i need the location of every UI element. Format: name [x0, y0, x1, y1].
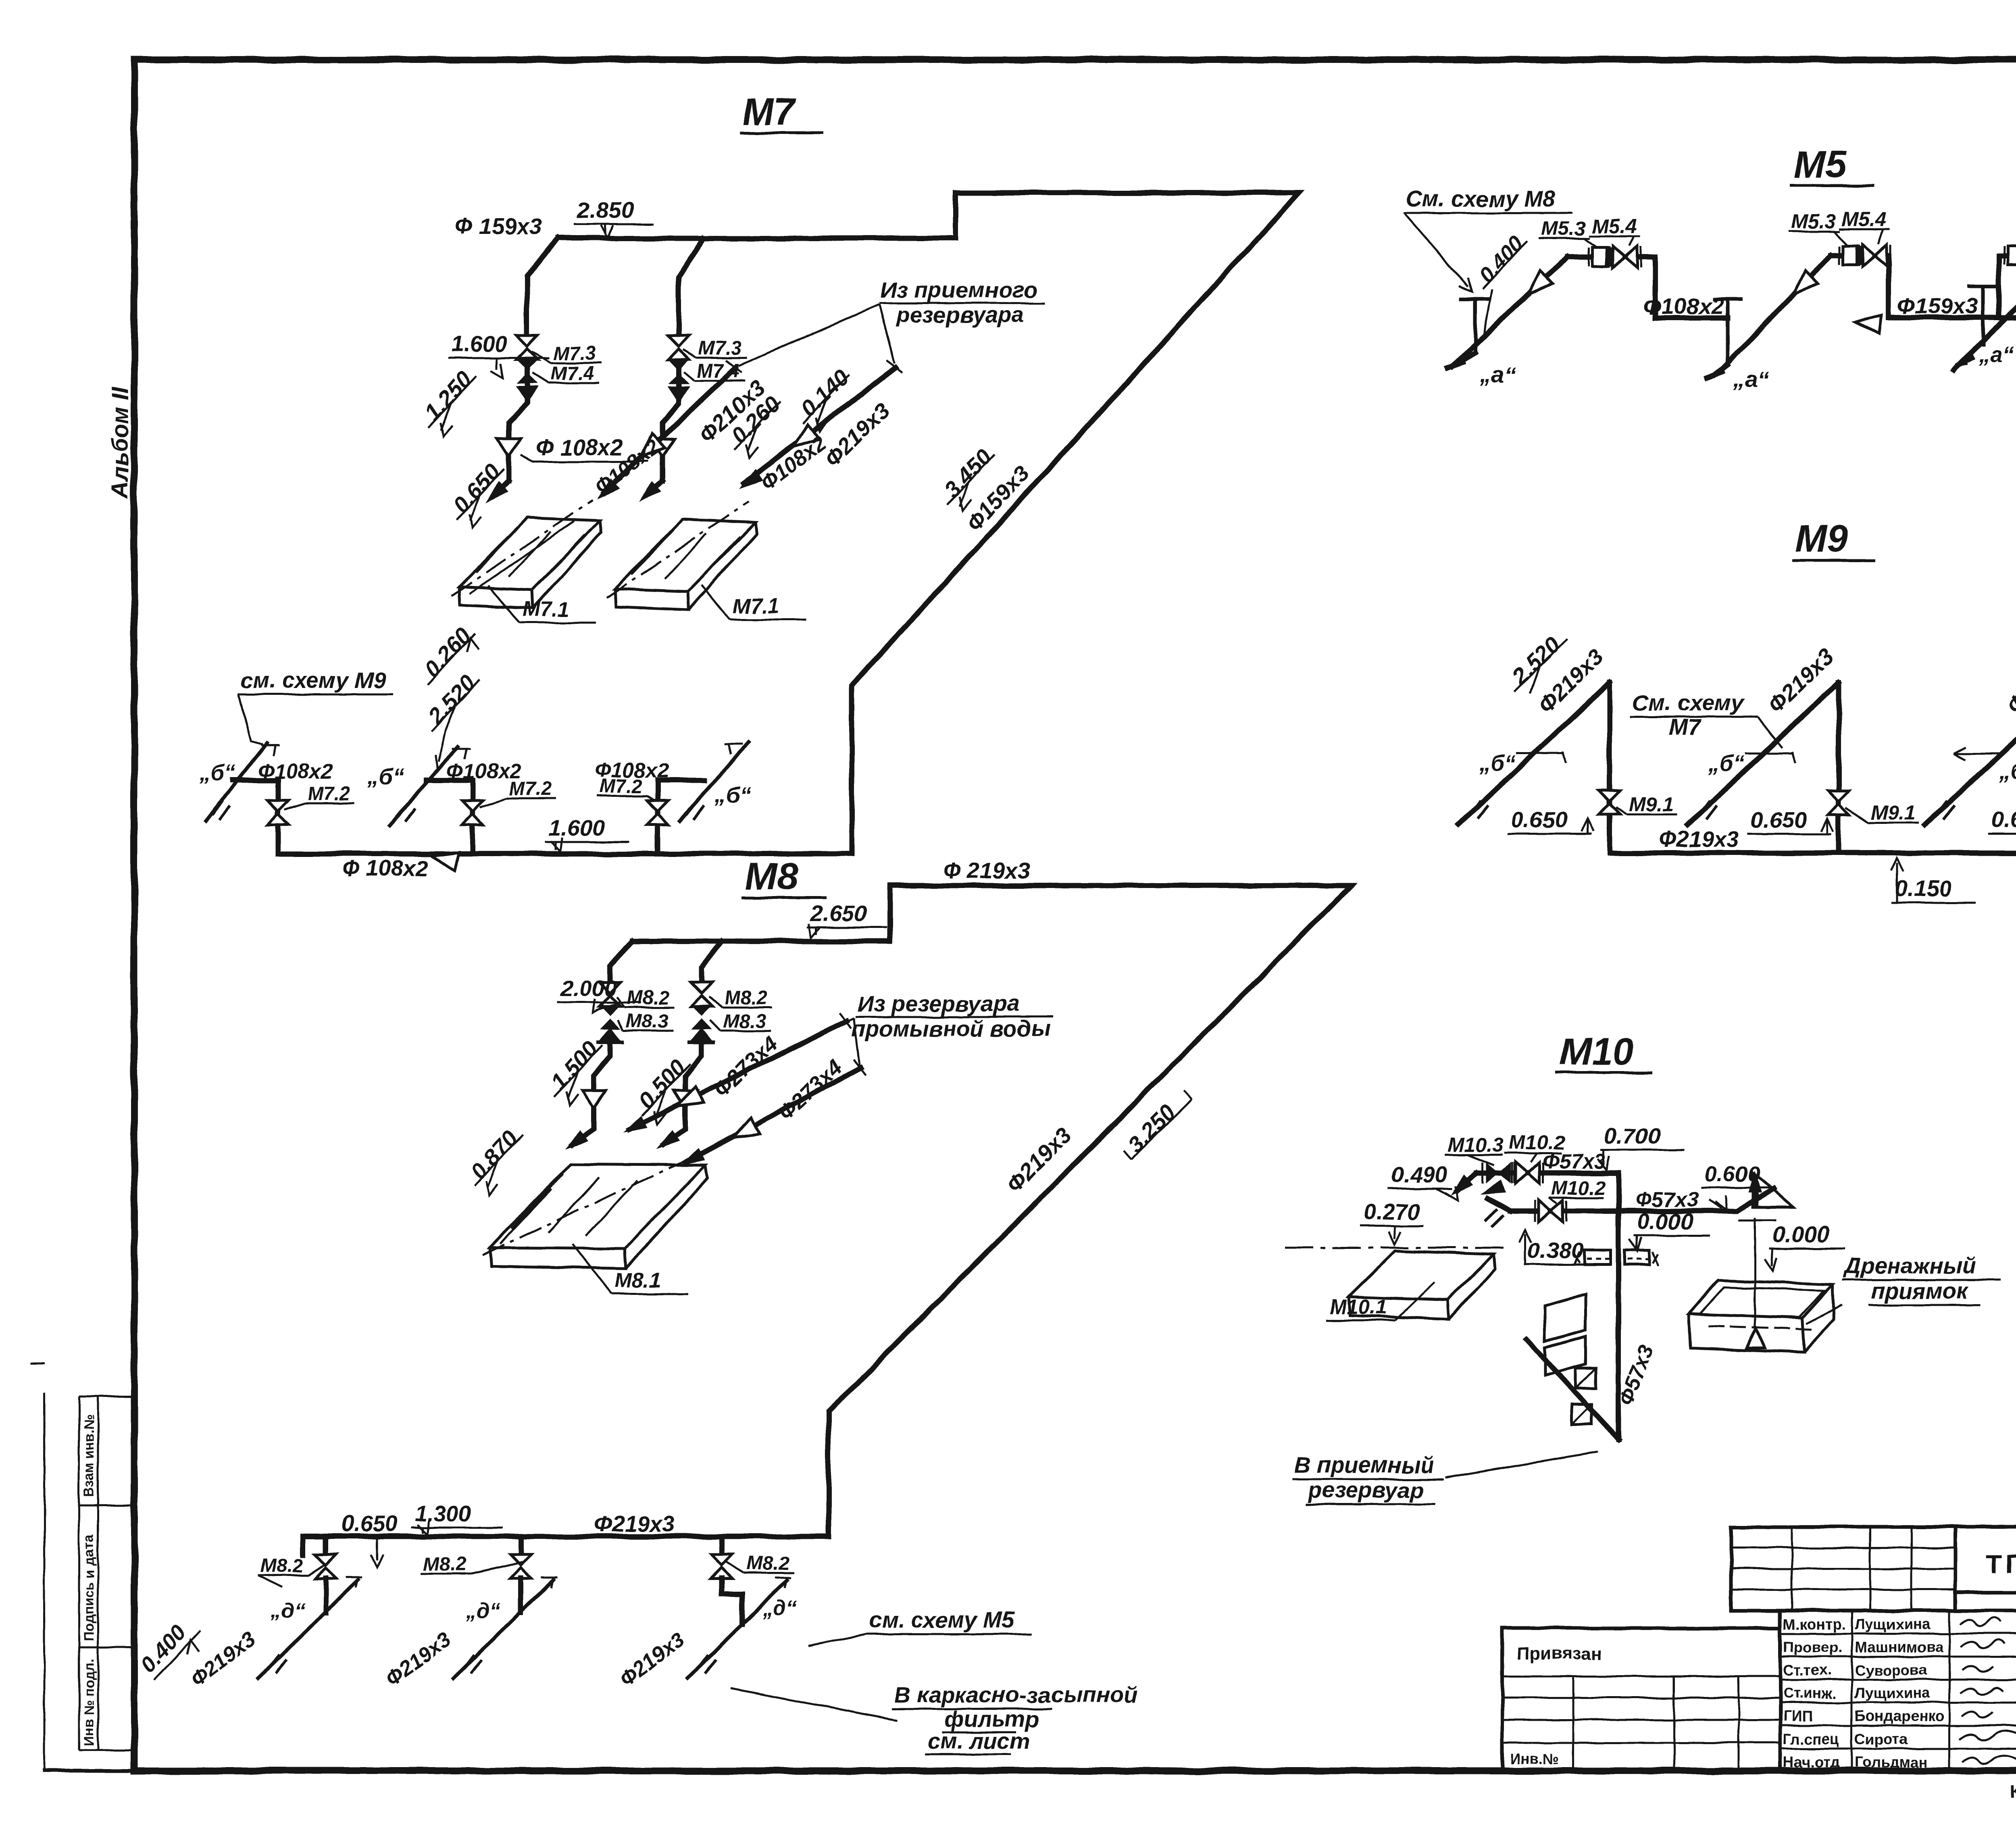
svg-text:0.270: 0.270: [1364, 1199, 1420, 1224]
svg-text:Ст.инж.: Ст.инж.: [1783, 1685, 1837, 1701]
svg-text:см. схему М5: см. схему М5: [869, 1607, 1015, 1632]
svg-text:Инв.№: Инв.№: [1510, 1751, 1559, 1767]
svg-text:„б“: „б“: [1999, 759, 2016, 784]
svg-text:М8.2: М8.2: [423, 1553, 467, 1575]
svg-text:Копировал: АНТИПОВА: Копировал: АНТИПОВА: [2010, 1781, 2016, 1802]
svg-text:„а“: „а“: [1733, 367, 1769, 392]
svg-text:Ф 108х2: Ф 108х2: [342, 855, 429, 881]
svg-text:„б“: „б“: [714, 782, 751, 807]
svg-text:0.000: 0.000: [1772, 1221, 1829, 1247]
svg-text:„б“: „б“: [1708, 750, 1745, 776]
svg-text:См. схему М8: См. схему М8: [1406, 186, 1556, 211]
svg-text:М5: М5: [1793, 143, 1847, 186]
svg-text:Из приемного: Из приемного: [880, 277, 1037, 302]
svg-text:М10: М10: [1560, 1030, 1634, 1073]
svg-text:„а“: „а“: [1979, 342, 2014, 367]
svg-text:1.600: 1.600: [548, 815, 605, 840]
svg-text:Ф57х3: Ф57х3: [1543, 1150, 1606, 1174]
svg-text:„б“: „б“: [1479, 750, 1516, 776]
svg-text:Альбом II: Альбом II: [107, 386, 133, 499]
svg-text:М5.4: М5.4: [1592, 215, 1637, 238]
svg-text:Бондаренко: Бондаренко: [1855, 1708, 1944, 1724]
svg-text:М8.1: М8.1: [614, 1269, 661, 1292]
svg-text:Ф 219х3: Ф 219х3: [943, 858, 1030, 883]
svg-text:М9: М9: [1795, 517, 1848, 560]
svg-text:„д“: „д“: [762, 1597, 797, 1620]
svg-text:ГИП: ГИП: [1783, 1708, 1813, 1724]
svg-text:„д“: „д“: [271, 1599, 305, 1623]
svg-text:приямок: приямок: [1871, 1278, 1968, 1303]
svg-text:„б“: „б“: [199, 760, 236, 785]
svg-text:В каркасно-засыпной: В каркасно-засыпной: [894, 1682, 1138, 1707]
svg-text:0.650: 0.650: [341, 1511, 398, 1536]
svg-text:0.000: 0.000: [1637, 1209, 1693, 1234]
svg-text:М8.3: М8.3: [625, 1011, 669, 1032]
svg-text:М9.1: М9.1: [1629, 793, 1674, 816]
svg-text:0.380: 0.380: [1527, 1238, 1584, 1263]
svg-text:Взам инв.№: Взам инв.№: [81, 1415, 97, 1497]
svg-text:М8.2: М8.2: [627, 987, 670, 1009]
svg-text:См. схему: См. схему: [1632, 690, 1745, 715]
svg-text:Дренажный: Дренажный: [1843, 1253, 1976, 1278]
svg-text:2.850: 2.850: [577, 197, 634, 223]
svg-text:М8.3: М8.3: [723, 1011, 766, 1032]
svg-text:М10.2: М10.2: [1552, 1178, 1606, 1199]
svg-text:Привязан: Привязан: [1517, 1644, 1602, 1663]
svg-text:М7.2: М7.2: [599, 776, 642, 797]
svg-text:Ф 159х3: Ф 159х3: [455, 213, 541, 239]
svg-text:Провер.: Провер.: [1783, 1639, 1843, 1655]
svg-text:Суворова: Суворова: [1855, 1662, 1928, 1678]
svg-text:В приемный: В приемный: [1294, 1452, 1434, 1478]
svg-text:Ф108х2: Ф108х2: [258, 760, 333, 783]
svg-text:ТП 902-2- 413.8Б: ТП 902-2- 413.8Б: [1986, 1549, 2016, 1578]
svg-text:Инв № подл.: Инв № подл.: [81, 1659, 97, 1746]
svg-text:М5.4: М5.4: [1842, 208, 1887, 230]
svg-text:М.контр.: М.контр.: [1783, 1616, 1845, 1632]
svg-text:Ф219х3: Ф219х3: [1659, 826, 1739, 852]
svg-text:М7.4: М7.4: [551, 363, 594, 384]
svg-text:Гольдман: Гольдман: [1855, 1754, 1927, 1770]
svg-text:Машнимова: Машнимова: [1855, 1639, 1944, 1655]
svg-text:промывной воды: промывной воды: [852, 1016, 1050, 1041]
svg-text:Ф 108х2: Ф 108х2: [536, 434, 623, 460]
svg-text:0.150: 0.150: [1895, 875, 1951, 901]
svg-text:1.600: 1.600: [451, 331, 507, 356]
svg-text:Сирота: Сирота: [1855, 1731, 1908, 1747]
svg-text:„д“: „д“: [466, 1599, 500, 1623]
svg-text:М8: М8: [745, 855, 798, 898]
svg-text:Ф159х3: Ф159х3: [1897, 293, 1978, 319]
svg-text:1.300: 1.300: [414, 1501, 471, 1526]
svg-text:М7: М7: [742, 91, 797, 133]
svg-text:резервуар: резервуар: [1307, 1477, 1424, 1503]
svg-text:М10.1: М10.1: [1329, 1295, 1387, 1319]
svg-text:Подпись и дата: Подпись и дата: [81, 1534, 97, 1641]
svg-text:2.000: 2.000: [560, 975, 617, 1001]
svg-text:М7.1: М7.1: [523, 598, 569, 621]
svg-text:М7.2: М7.2: [509, 778, 552, 800]
svg-text:Ф219х3: Ф219х3: [594, 1511, 675, 1536]
svg-text:М7.1: М7.1: [733, 594, 780, 618]
svg-text:М8.2: М8.2: [724, 987, 767, 1009]
svg-text:М5.3: М5.3: [1541, 217, 1586, 240]
svg-text:М7.3: М7.3: [553, 343, 596, 364]
svg-text:Лущихина: Лущихина: [1855, 1616, 1930, 1632]
svg-text:Ф57х3: Ф57х3: [1635, 1188, 1698, 1211]
svg-text:Из резервуара: Из резервуара: [857, 991, 1019, 1016]
svg-text:М10.3: М10.3: [1447, 1134, 1504, 1156]
svg-text:0.650: 0.650: [1511, 807, 1568, 832]
svg-text:М8.2: М8.2: [747, 1553, 790, 1574]
svg-text:М9.1: М9.1: [1871, 801, 1916, 824]
svg-text:М5.3: М5.3: [1791, 210, 1836, 233]
svg-text:Ст.тех.: Ст.тех.: [1783, 1662, 1832, 1678]
svg-text:„а“: „а“: [1480, 362, 1516, 387]
svg-text:Гл.спец: Гл.спец: [1783, 1731, 1839, 1747]
svg-text:0.650: 0.650: [1991, 807, 2016, 832]
svg-text:0.650: 0.650: [1751, 807, 1807, 832]
svg-text:Нач.отд: Нач.отд: [1783, 1754, 1840, 1770]
svg-text:„б“: „б“: [367, 763, 404, 789]
svg-text:М8.2: М8.2: [260, 1555, 304, 1576]
svg-text:М7.3: М7.3: [699, 338, 742, 359]
svg-text:резервуара: резервуара: [895, 302, 1024, 327]
svg-text:0.490: 0.490: [1391, 1162, 1447, 1187]
svg-text:см. схему М9: см. схему М9: [240, 667, 386, 693]
svg-text:0.700: 0.700: [1604, 1123, 1660, 1148]
svg-text:М7.2: М7.2: [307, 783, 350, 805]
svg-text:2.650: 2.650: [810, 900, 867, 926]
svg-text:Ф108х2: Ф108х2: [1643, 293, 1724, 319]
svg-text:Лущихина: Лущихина: [1855, 1685, 1930, 1701]
